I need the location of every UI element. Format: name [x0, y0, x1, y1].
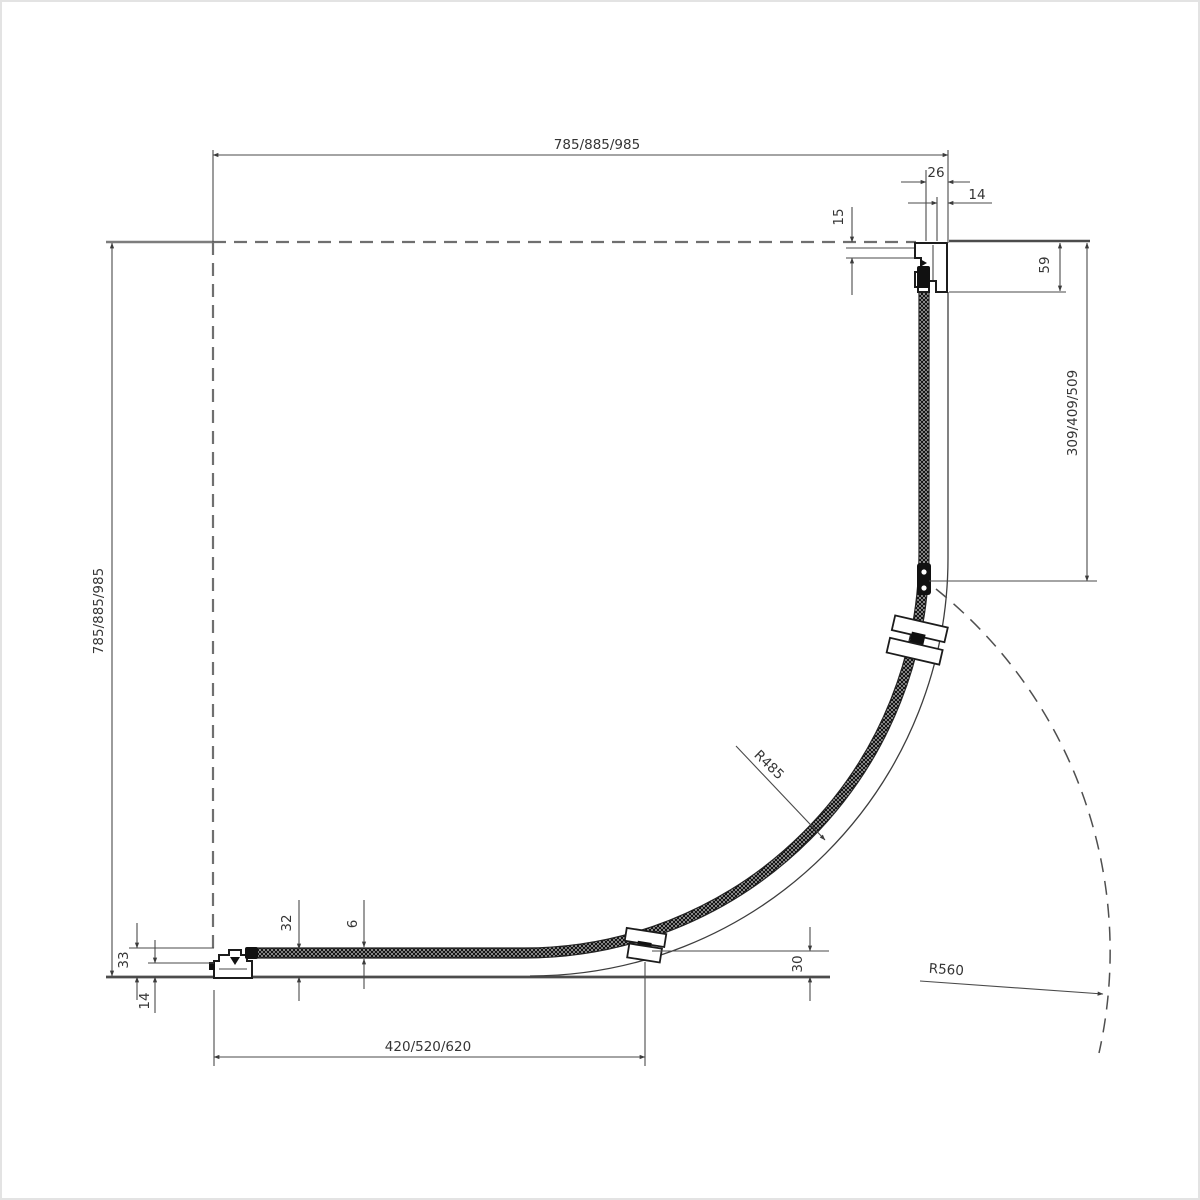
dimension-label: 32 [279, 914, 295, 931]
glass-band [252, 277, 929, 958]
radius-label: R560 [928, 961, 964, 979]
dimension-14-top: 14 [908, 187, 992, 241]
hinge-pin-upper [921, 569, 926, 574]
technical-drawing-canvas: 785/885/985 785/885/985 26 14 15 59 309/… [0, 0, 1200, 1200]
dimension-label: 33 [116, 951, 132, 968]
door-hinge-top [917, 563, 931, 595]
glass-clamp-mid [887, 615, 948, 664]
radius-glass-callout: R485 [736, 746, 825, 840]
glass-seal-top [917, 266, 930, 288]
dimension-15: 15 [831, 207, 852, 295]
dimension-left-height: 785/885/985 [91, 243, 112, 976]
door-swing-arc [936, 589, 1110, 1053]
radius-label: R485 [751, 747, 787, 783]
dimension-label: 6 [345, 920, 361, 929]
dimension-label: 420/520/620 [385, 1039, 471, 1055]
dimension-label: 309/409/509 [1065, 370, 1081, 456]
dimension-59: 59 [949, 243, 1066, 292]
dimension-label: 14 [137, 992, 153, 1009]
wall-profile-top-right [846, 243, 947, 292]
radius-door-swing-callout: R560 [920, 961, 1103, 994]
dimension-right-panel: 309/409/509 [929, 243, 1097, 581]
dimension-label: 785/885/985 [91, 568, 107, 654]
dimension-label: 785/885/985 [554, 137, 640, 153]
leader-line [920, 981, 1103, 994]
dimension-label: 59 [1037, 256, 1053, 273]
wall-lines [106, 241, 1090, 977]
door-pivot-bracket-bottom [622, 928, 666, 963]
dimension-label: 26 [927, 165, 944, 181]
dimension-label: 14 [968, 187, 985, 203]
dimension-30: 30 [652, 927, 829, 1001]
shower-enclosure-plan-svg: 785/885/985 785/885/985 26 14 15 59 309/… [0, 0, 1200, 1200]
dimension-33: 33 [116, 923, 214, 1000]
dimension-label: 30 [790, 955, 806, 972]
outer-frame-edge [530, 292, 948, 976]
glass-seal-bottom [245, 947, 258, 959]
hinge-pin-lower [921, 585, 926, 590]
dimension-top-width: 785/885/985 [213, 137, 948, 243]
image-border [1, 1, 1199, 1199]
wall-profile-bottom-left [209, 947, 258, 978]
glass-panel [252, 277, 948, 976]
dimension-label: 15 [831, 208, 847, 225]
leader-line [736, 746, 825, 840]
